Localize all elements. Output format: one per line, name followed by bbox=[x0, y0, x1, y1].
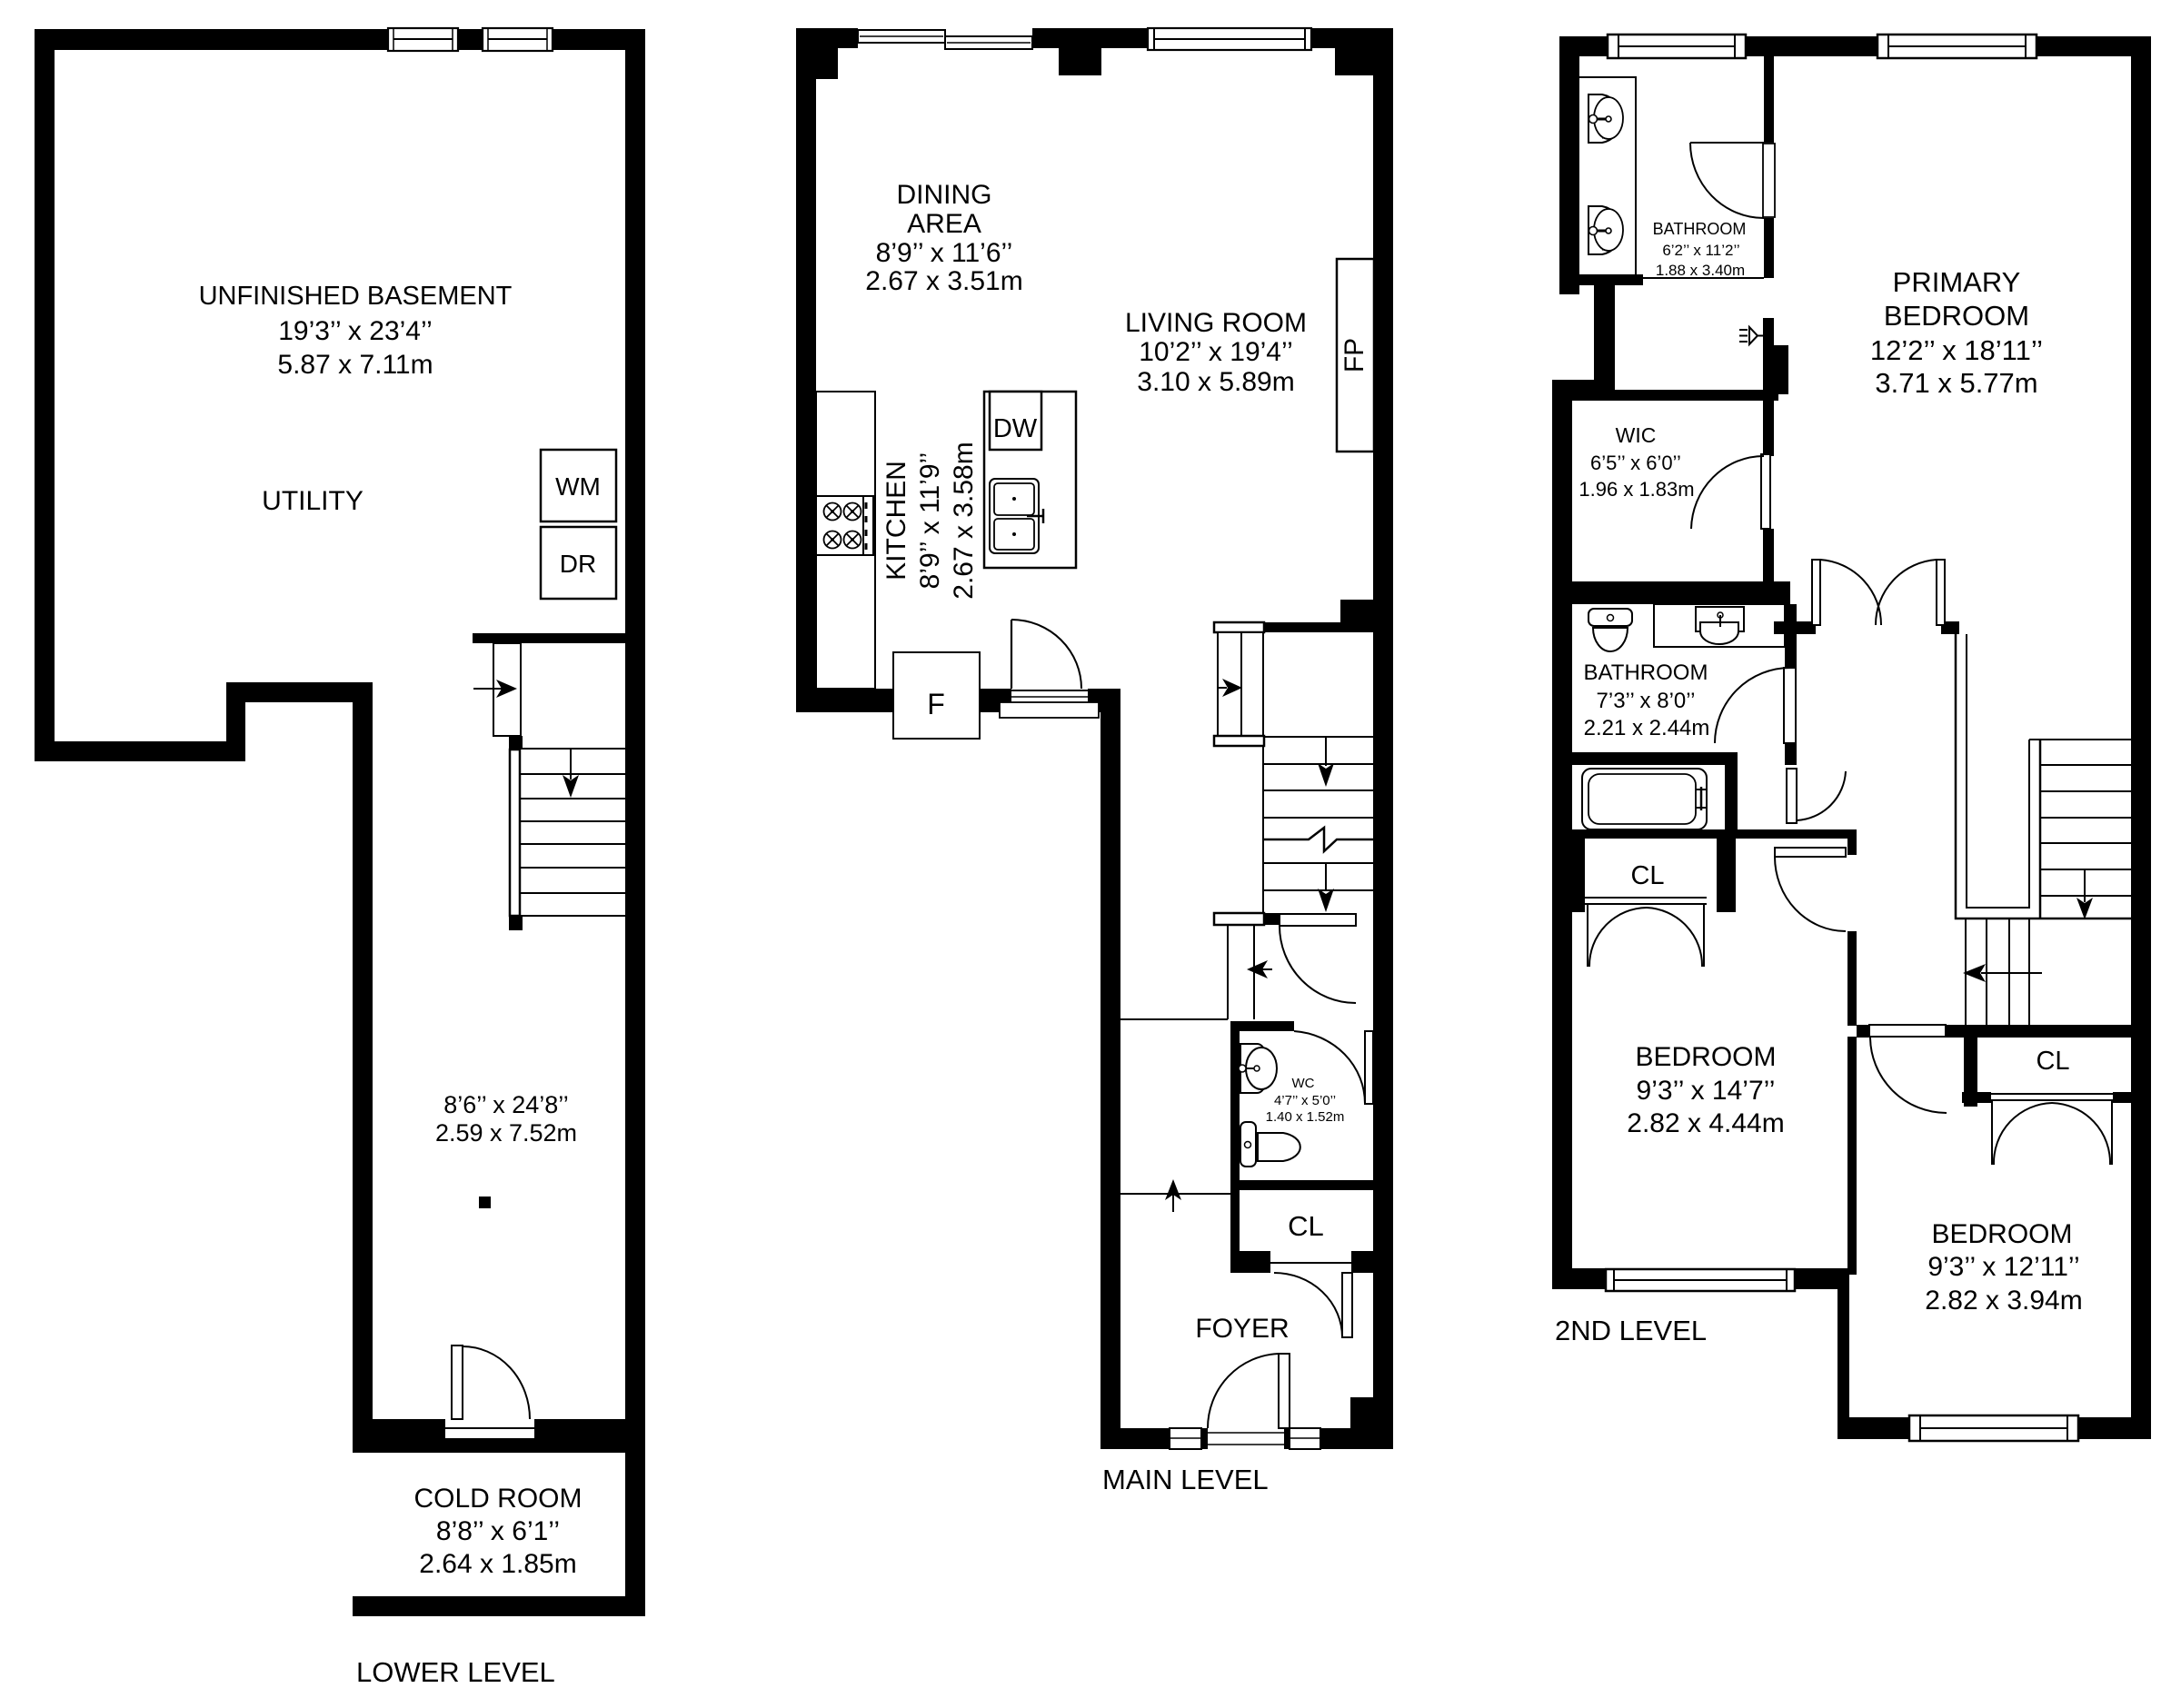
svg-text:F: F bbox=[927, 688, 945, 720]
svg-text:1.88 x 3.40m: 1.88 x 3.40m bbox=[1656, 262, 1745, 279]
svg-text:4’7’’ x 5’0’’: 4’7’’ x 5’0’’ bbox=[1274, 1093, 1336, 1108]
svg-text:2.64 x 1.85m: 2.64 x 1.85m bbox=[419, 1549, 576, 1579]
svg-text:3.71 x 5.77m: 3.71 x 5.77m bbox=[1875, 367, 2037, 399]
svg-text:CL: CL bbox=[1630, 861, 1664, 890]
svg-text:3.10 x 5.89m: 3.10 x 5.89m bbox=[1137, 367, 1294, 397]
svg-text:FP: FP bbox=[1339, 338, 1369, 372]
svg-text:PRIMARY: PRIMARY bbox=[1893, 266, 2021, 298]
svg-text:2.67 x 3.58m: 2.67 x 3.58m bbox=[949, 442, 979, 599]
svg-text:2.21 x 2.44m: 2.21 x 2.44m bbox=[1584, 716, 1710, 740]
svg-text:2.82 x 4.44m: 2.82 x 4.44m bbox=[1627, 1108, 1784, 1138]
svg-text:8’8’’ x 6’1’’: 8’8’’ x 6’1’’ bbox=[436, 1516, 560, 1546]
svg-text:WC: WC bbox=[1292, 1076, 1315, 1091]
svg-text:8’9’’ x 11’9’’: 8’9’’ x 11’9’’ bbox=[915, 452, 945, 590]
svg-text:BEDROOM: BEDROOM bbox=[1931, 1219, 2072, 1249]
svg-text:1.96 x 1.83m: 1.96 x 1.83m bbox=[1578, 478, 1694, 501]
svg-text:CL: CL bbox=[2036, 1047, 2069, 1076]
svg-text:UNFINISHED BASEMENT: UNFINISHED BASEMENT bbox=[199, 282, 513, 311]
svg-text:CL: CL bbox=[1288, 1210, 1324, 1242]
svg-text:8’9’’ x 11’6’’: 8’9’’ x 11’6’’ bbox=[876, 238, 1013, 268]
svg-text:2.59 x 7.52m: 2.59 x 7.52m bbox=[435, 1119, 577, 1147]
svg-text:WM: WM bbox=[555, 472, 601, 501]
svg-text:DR: DR bbox=[560, 550, 596, 578]
svg-text:1.40 x 1.52m: 1.40 x 1.52m bbox=[1266, 1109, 1345, 1125]
svg-text:8’6’’ x 24’8’’: 8’6’’ x 24’8’’ bbox=[443, 1091, 569, 1118]
svg-text:BEDROOM: BEDROOM bbox=[1884, 300, 2029, 332]
svg-text:9’3’’ x 14’7’’: 9’3’’ x 14’7’’ bbox=[1637, 1076, 1776, 1106]
svg-text:MAIN LEVEL: MAIN LEVEL bbox=[1102, 1464, 1269, 1495]
svg-text:10’2’’ x 19’4’’: 10’2’’ x 19’4’’ bbox=[1139, 337, 1293, 367]
svg-text:BATHROOM: BATHROOM bbox=[1584, 660, 1708, 685]
svg-text:KITCHEN: KITCHEN bbox=[881, 461, 911, 581]
svg-text:6’2’’ x 11’2’’: 6’2’’ x 11’2’’ bbox=[1662, 242, 1739, 259]
svg-text:DINING: DINING bbox=[897, 180, 992, 210]
svg-text:FOYER: FOYER bbox=[1195, 1314, 1289, 1344]
svg-text:BATHROOM: BATHROOM bbox=[1653, 220, 1747, 238]
svg-text:12’2’’ x 18’11’’: 12’2’’ x 18’11’’ bbox=[1870, 334, 2043, 366]
svg-text:2ND LEVEL: 2ND LEVEL bbox=[1555, 1315, 1707, 1346]
svg-text:5.87 x 7.11m: 5.87 x 7.11m bbox=[277, 350, 433, 380]
svg-text:LOWER LEVEL: LOWER LEVEL bbox=[356, 1656, 555, 1688]
svg-text:BEDROOM: BEDROOM bbox=[1635, 1042, 1776, 1072]
svg-text:2.82 x 3.94m: 2.82 x 3.94m bbox=[1925, 1286, 2082, 1316]
svg-text:WIC: WIC bbox=[1616, 423, 1657, 447]
svg-text:6’5’’ x 6’0’’: 6’5’’ x 6’0’’ bbox=[1590, 452, 1681, 474]
svg-text:19’3’’ x 23’4’’: 19’3’’ x 23’4’’ bbox=[278, 316, 433, 346]
svg-text:COLD ROOM: COLD ROOM bbox=[413, 1484, 582, 1514]
svg-text:2.67 x 3.51m: 2.67 x 3.51m bbox=[865, 266, 1022, 296]
svg-text:UTILITY: UTILITY bbox=[262, 486, 363, 516]
svg-text:7’3’’ x 8’0’’: 7’3’’ x 8’0’’ bbox=[1597, 689, 1696, 713]
svg-text:DW: DW bbox=[993, 414, 1038, 443]
svg-text:9’3’’ x 12’11’’: 9’3’’ x 12’11’’ bbox=[1927, 1252, 2079, 1282]
svg-text:AREA: AREA bbox=[907, 209, 981, 239]
svg-text:LIVING ROOM: LIVING ROOM bbox=[1125, 308, 1307, 338]
